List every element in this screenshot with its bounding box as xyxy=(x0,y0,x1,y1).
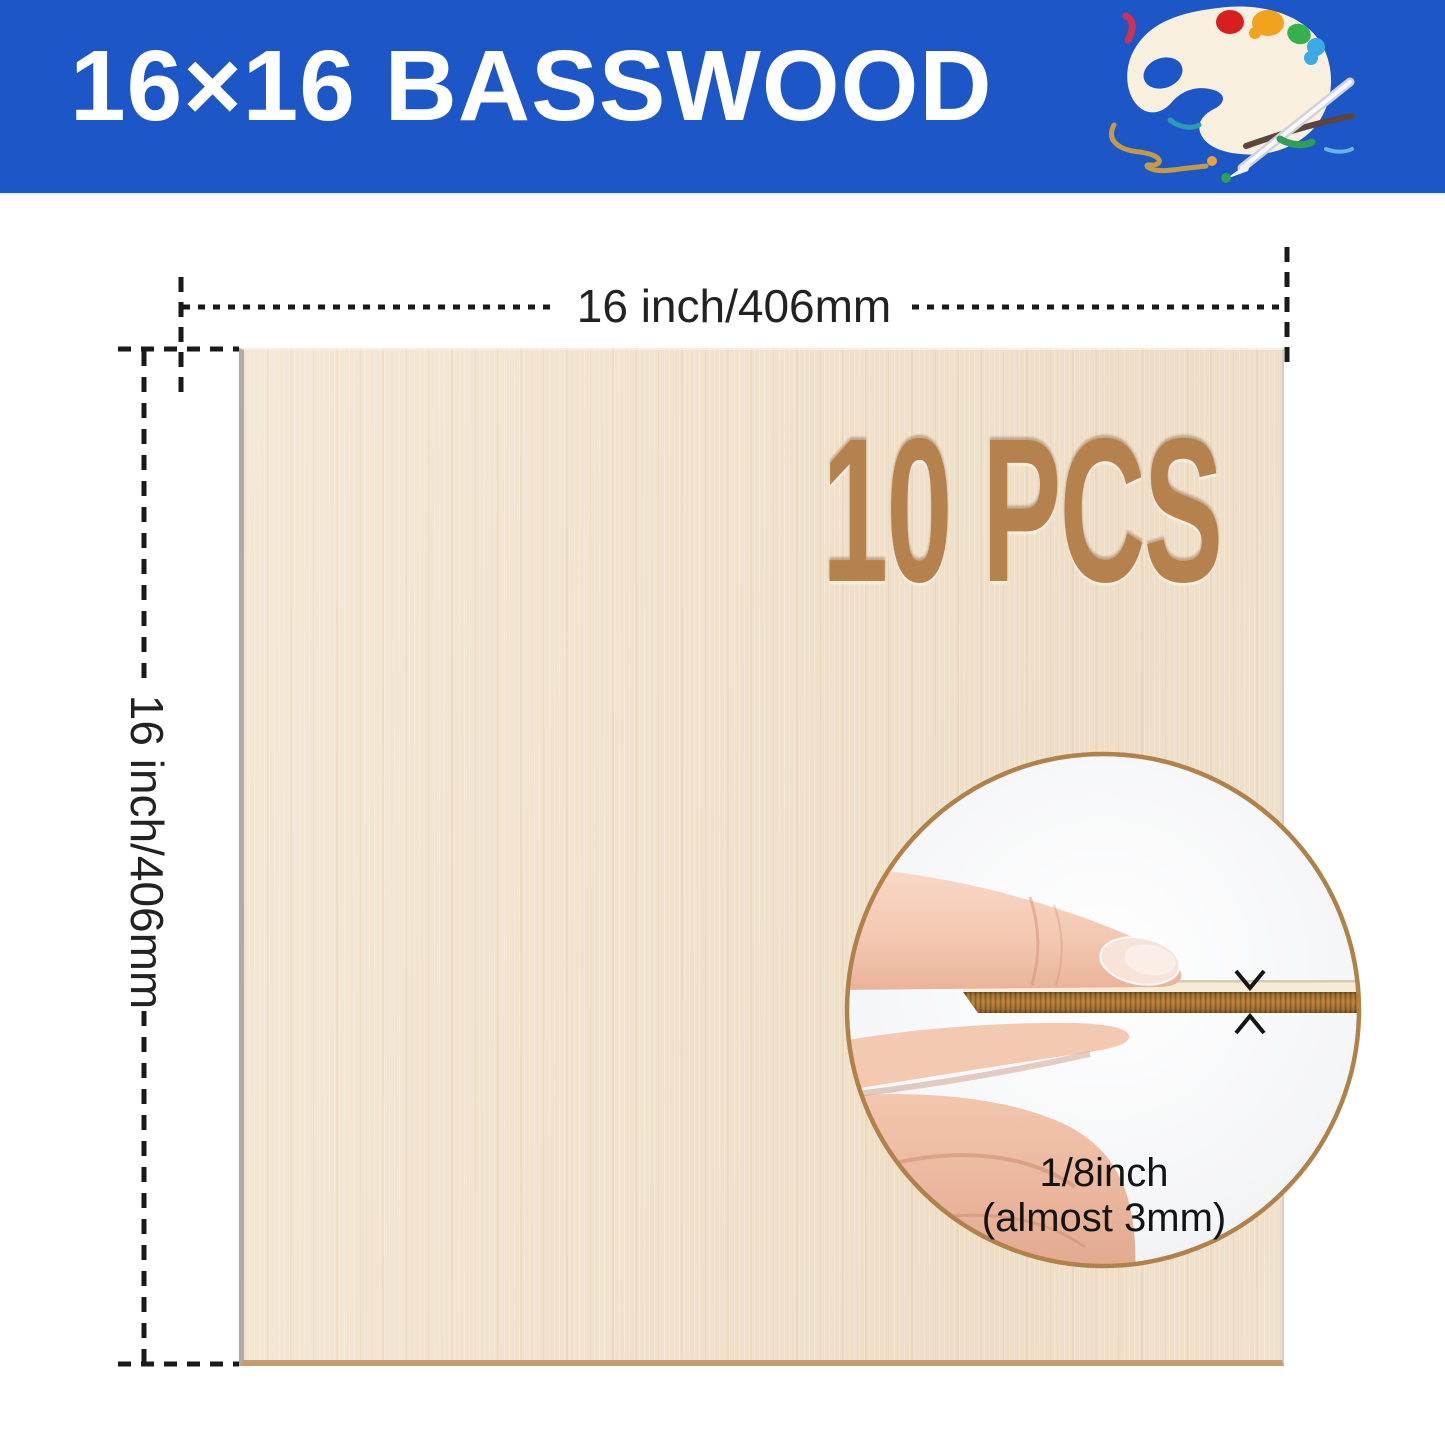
width-dimension-label: 16 inch/406mm xyxy=(577,283,892,329)
paint-palette-icon xyxy=(1100,0,1445,200)
page-title: 16×16 BASSWOOD xyxy=(70,36,993,136)
thickness-label-line2: (almost 3mm) xyxy=(982,1196,1226,1241)
height-dimension-label: 16 inch/406mm xyxy=(124,695,170,1010)
product-image: 16×16 BASSWOOD xyxy=(0,0,1445,1445)
thickness-label: 1/8inch (almost 3mm) xyxy=(982,1151,1226,1241)
header-banner: 16×16 BASSWOOD xyxy=(0,0,1445,195)
thickness-label-line1: 1/8inch xyxy=(982,1151,1226,1196)
piece-count-label: 10 PCS xyxy=(822,408,1221,613)
